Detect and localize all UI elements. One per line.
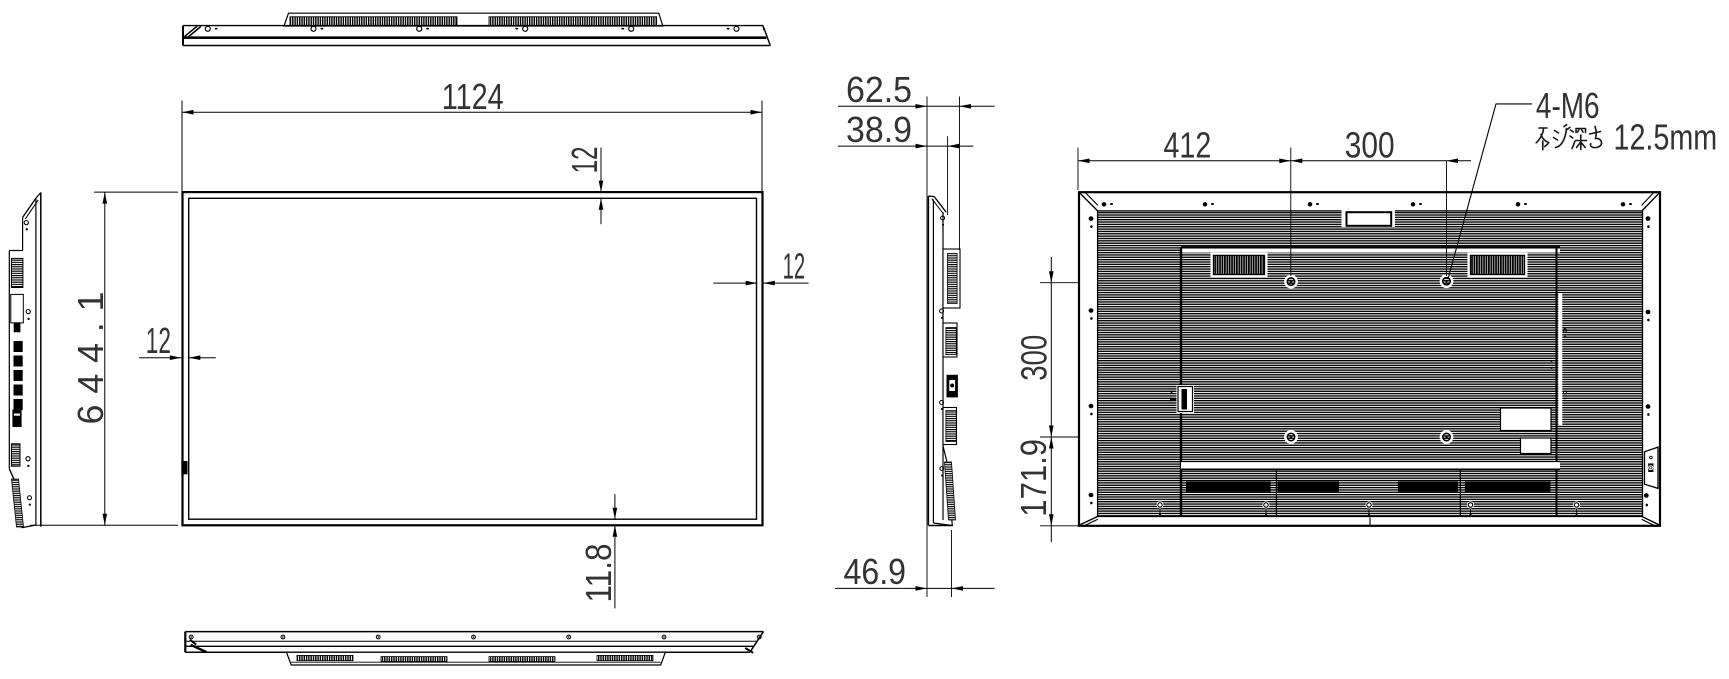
svg-text:62.5: 62.5 <box>846 69 912 110</box>
svg-text:12: 12 <box>783 245 806 286</box>
svg-text:38.9: 38.9 <box>846 109 912 150</box>
svg-text:4-M6: 4-M6 <box>1536 85 1600 126</box>
svg-text:300: 300 <box>1013 335 1054 381</box>
svg-text:1124: 1124 <box>442 76 504 117</box>
svg-text:300: 300 <box>1345 125 1395 166</box>
svg-text:644.1: 644.1 <box>70 292 111 425</box>
svg-text:171.9: 171.9 <box>1013 439 1054 517</box>
svg-text:412: 412 <box>1164 125 1212 166</box>
svg-text:12: 12 <box>146 320 171 361</box>
svg-text:11.8: 11.8 <box>578 544 619 603</box>
svg-text:12.5mm: 12.5mm <box>1614 117 1718 158</box>
svg-text:46.9: 46.9 <box>844 551 907 592</box>
svg-text:12: 12 <box>564 147 605 174</box>
